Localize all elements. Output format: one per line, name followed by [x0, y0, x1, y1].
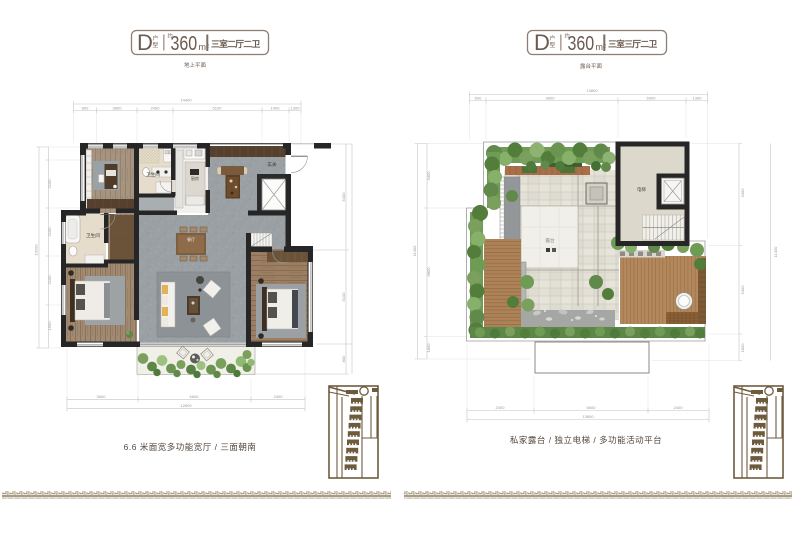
- svg-text:1300: 1300: [693, 96, 703, 101]
- svg-text:5400: 5400: [740, 285, 745, 295]
- svg-text:卫生间: 卫生间: [86, 232, 100, 239]
- svg-text:三室二厅二卫: 三室二厅二卫: [211, 38, 260, 49]
- svg-text:360: 360: [568, 32, 595, 54]
- svg-text:6800: 6800: [426, 267, 431, 277]
- svg-text:6600: 6600: [190, 394, 200, 399]
- svg-text:户: 户: [550, 34, 556, 42]
- svg-text:露台: 露台: [545, 237, 555, 244]
- svg-text:D: D: [534, 30, 550, 55]
- svg-text:2400: 2400: [274, 394, 284, 399]
- svg-text:600: 600: [475, 96, 482, 101]
- svg-text:2400: 2400: [674, 405, 684, 410]
- svg-text:1900: 1900: [47, 321, 52, 331]
- svg-text:2400: 2400: [496, 405, 506, 410]
- svg-text:5400: 5400: [341, 192, 346, 202]
- svg-text:2100: 2100: [47, 179, 52, 189]
- svg-text:3400: 3400: [740, 188, 745, 198]
- svg-text:13800: 13800: [586, 88, 598, 93]
- svg-text:5100: 5100: [213, 106, 223, 111]
- svg-text:11400: 11400: [773, 246, 778, 258]
- svg-text:3600: 3600: [97, 394, 107, 399]
- svg-text:800: 800: [82, 106, 89, 111]
- svg-text:360: 360: [171, 32, 198, 54]
- svg-text:餐厅: 餐厅: [187, 236, 195, 242]
- svg-text:800: 800: [341, 355, 346, 362]
- svg-text:9600: 9600: [546, 96, 556, 101]
- svg-text:厨房: 厨房: [191, 175, 199, 181]
- svg-text:卫生间: 卫生间: [146, 171, 160, 178]
- svg-text:2400: 2400: [151, 106, 161, 111]
- svg-text:户: 户: [153, 34, 159, 42]
- svg-text:11400: 11400: [412, 245, 417, 257]
- svg-text:1800: 1800: [426, 343, 431, 353]
- svg-text:2100: 2100: [47, 275, 52, 285]
- svg-text:私家露台 / 独立电梯 / 多功能活动平台: 私家露台 / 独立电梯 / 多功能活动平台: [510, 435, 662, 445]
- svg-text:2100: 2100: [47, 227, 52, 237]
- svg-text:3600: 3600: [113, 106, 123, 111]
- svg-text:型: 型: [153, 41, 159, 49]
- svg-text:6900: 6900: [647, 96, 657, 101]
- svg-text:三室三厅二卫: 三室三厅二卫: [608, 38, 657, 49]
- svg-text:12600: 12600: [180, 403, 192, 408]
- svg-text:10200: 10200: [34, 244, 39, 256]
- svg-text:1300: 1300: [291, 106, 301, 111]
- svg-text:电梯: 电梯: [637, 186, 646, 193]
- svg-text:型: 型: [550, 41, 556, 49]
- svg-text:地上平面: 地上平面: [184, 61, 207, 69]
- svg-text:3400: 3400: [426, 171, 431, 181]
- svg-text:1400: 1400: [271, 106, 281, 111]
- svg-text:13800: 13800: [582, 414, 594, 419]
- svg-text:6600: 6600: [587, 405, 597, 410]
- svg-text:玄关: 玄关: [267, 161, 277, 168]
- svg-text:D: D: [137, 30, 153, 55]
- svg-text:6.6 米面宽多功能宽厅 / 三面朝南: 6.6 米面宽多功能宽厅 / 三面朝南: [124, 442, 257, 452]
- svg-text:露台平面: 露台平面: [580, 62, 603, 70]
- svg-text:1800: 1800: [740, 343, 745, 353]
- svg-text:5100: 5100: [341, 292, 346, 302]
- svg-text:14400: 14400: [180, 98, 192, 103]
